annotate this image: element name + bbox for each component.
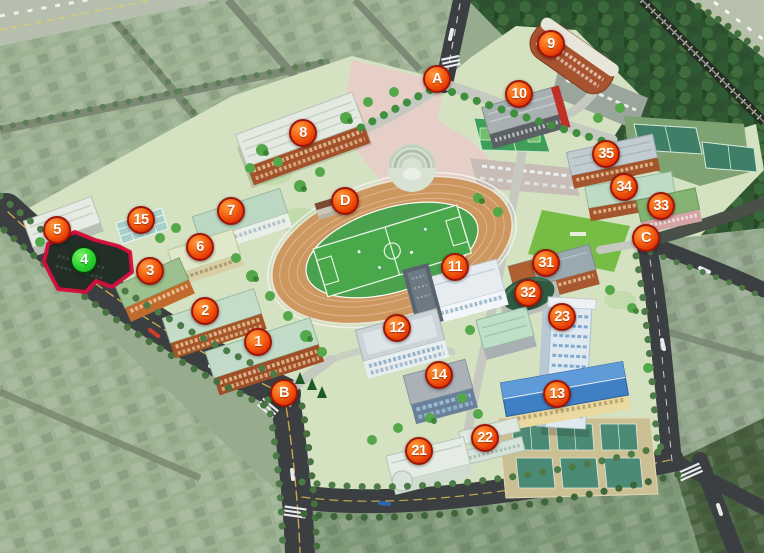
marker-3[interactable]: 3 bbox=[136, 257, 164, 285]
marker-C[interactable]: C bbox=[632, 224, 660, 252]
marker-32[interactable]: 32 bbox=[514, 279, 542, 307]
marker-B[interactable]: B bbox=[270, 379, 298, 407]
marker-12[interactable]: 12 bbox=[383, 314, 411, 342]
marker-10[interactable]: 10 bbox=[505, 80, 533, 108]
marker-14[interactable]: 14 bbox=[425, 361, 453, 389]
marker-34[interactable]: 34 bbox=[610, 173, 638, 201]
marker-21[interactable]: 21 bbox=[405, 437, 433, 465]
marker-A[interactable]: A bbox=[423, 65, 451, 93]
marker-5[interactable]: 5 bbox=[43, 216, 71, 244]
marker-8[interactable]: 8 bbox=[289, 119, 317, 147]
markers-layer: 1234567891011121314152122233132333435ABC… bbox=[0, 0, 764, 553]
marker-33[interactable]: 33 bbox=[647, 192, 675, 220]
marker-2[interactable]: 2 bbox=[191, 297, 219, 325]
marker-D[interactable]: D bbox=[331, 187, 359, 215]
marker-7[interactable]: 7 bbox=[217, 197, 245, 225]
marker-13[interactable]: 13 bbox=[543, 380, 571, 408]
marker-1[interactable]: 1 bbox=[244, 328, 272, 356]
marker-23[interactable]: 23 bbox=[548, 303, 576, 331]
marker-35[interactable]: 35 bbox=[592, 140, 620, 168]
marker-15[interactable]: 15 bbox=[127, 206, 155, 234]
marker-11[interactable]: 11 bbox=[441, 253, 469, 281]
marker-4[interactable]: 4 bbox=[70, 246, 98, 274]
marker-31[interactable]: 31 bbox=[532, 249, 560, 277]
campus-map: 1234567891011121314152122233132333435ABC… bbox=[0, 0, 764, 553]
marker-22[interactable]: 22 bbox=[471, 424, 499, 452]
marker-9[interactable]: 9 bbox=[537, 30, 565, 58]
marker-6[interactable]: 6 bbox=[186, 233, 214, 261]
